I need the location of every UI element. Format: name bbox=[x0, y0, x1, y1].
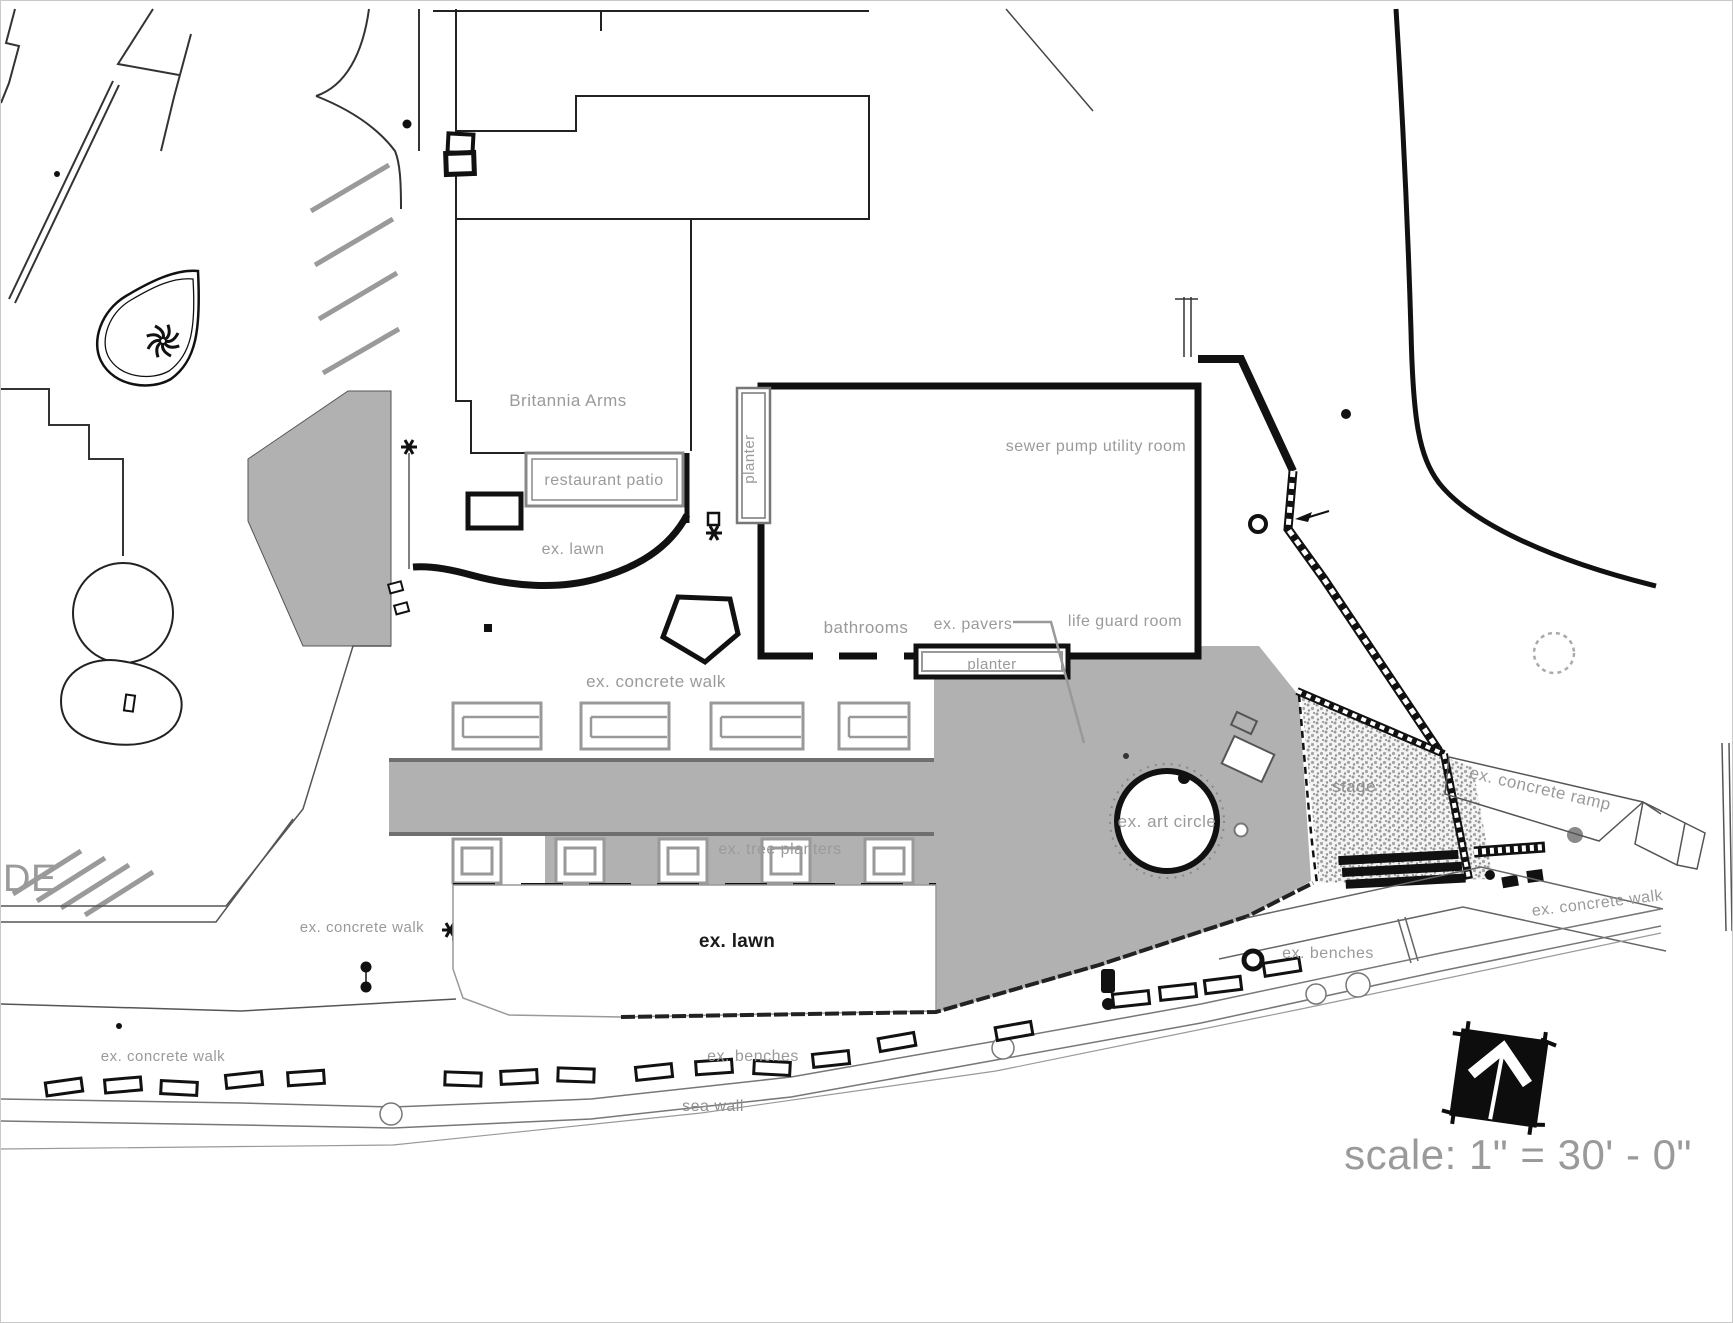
label-stage: stage bbox=[1332, 777, 1376, 796]
planting-bed bbox=[61, 660, 182, 745]
circular-planter bbox=[73, 563, 173, 663]
property-line bbox=[161, 34, 191, 151]
property-line bbox=[118, 9, 179, 75]
label-sea-wall: sea wall bbox=[682, 1098, 744, 1115]
light-post-icon bbox=[401, 440, 417, 454]
utility-box bbox=[124, 695, 135, 712]
shaded-paving-area bbox=[248, 391, 391, 646]
manhole bbox=[1250, 516, 1266, 532]
path-posts bbox=[1175, 297, 1198, 357]
curb-line bbox=[9, 81, 113, 299]
pole-dot bbox=[1485, 870, 1495, 880]
small-manhole bbox=[1235, 824, 1248, 837]
label-walk-center: ex. concrete walk bbox=[586, 672, 726, 691]
light-post-icon bbox=[706, 513, 722, 540]
label-benches-east: ex. benches bbox=[1282, 945, 1374, 962]
pole-dot bbox=[54, 171, 60, 177]
lawn-area bbox=[453, 885, 936, 1017]
label-edge-text: DE bbox=[3, 858, 57, 900]
label-tree-planters: ex. tree planters bbox=[718, 841, 841, 858]
label-concrete-ramp: ex. concrete ramp bbox=[1468, 763, 1613, 814]
kiosk-structure bbox=[468, 494, 521, 528]
label-restaurant-patio: restaurant patio bbox=[544, 472, 663, 489]
label-benches-south: ex. benches bbox=[707, 1048, 799, 1065]
label-walk-west: ex. concrete walk bbox=[300, 919, 424, 936]
stage-steps bbox=[1338, 850, 1466, 890]
planter-strips bbox=[453, 703, 909, 749]
site-plan-sheet: Britannia Arms restaurant patio ex. lawn… bbox=[0, 0, 1733, 1323]
parking-stripes-north bbox=[311, 165, 399, 373]
pole-dot bbox=[1341, 409, 1351, 419]
scale-note: scale: 1" = 30' - 0" bbox=[1344, 1131, 1692, 1178]
door-opening bbox=[877, 649, 904, 660]
bollard-pair bbox=[361, 962, 372, 993]
equipment-box bbox=[1501, 875, 1519, 889]
label-planter-south: planter bbox=[967, 656, 1016, 673]
label-life-guard-room: life guard room bbox=[1068, 613, 1182, 630]
label-sewer-pump: sewer pump utility room bbox=[1006, 438, 1186, 455]
label-walk-southwest: ex. concrete walk bbox=[101, 1048, 225, 1065]
trash-can-icon bbox=[1101, 969, 1115, 1010]
pole-dot bbox=[403, 120, 412, 129]
site-plan-canvas: Britannia Arms restaurant patio ex. lawn… bbox=[1, 1, 1733, 1323]
north-arrow-icon bbox=[1440, 1019, 1557, 1136]
label-ex-lawn-north: ex. lawn bbox=[542, 541, 605, 558]
post-base bbox=[484, 624, 492, 632]
label-art-circle: ex. art circle bbox=[1118, 812, 1217, 831]
landscape-island bbox=[97, 271, 199, 386]
curb-line bbox=[15, 85, 119, 303]
pentagon-planter bbox=[663, 597, 738, 662]
property-line bbox=[1, 9, 19, 103]
label-planter-west: planter bbox=[741, 434, 758, 483]
door-opening bbox=[813, 649, 839, 660]
car-icon bbox=[446, 133, 475, 174]
tree-canopy bbox=[1534, 633, 1574, 673]
drinking-fountain bbox=[1244, 951, 1262, 969]
label-ex-pavers: ex. pavers bbox=[934, 616, 1013, 633]
pole-dot bbox=[116, 1023, 122, 1029]
label-ex-lawn-south: ex. lawn bbox=[699, 931, 775, 952]
label-britannia-arms: Britannia Arms bbox=[509, 391, 627, 410]
direction-arrow bbox=[1295, 511, 1329, 522]
retaining-wall bbox=[1198, 359, 1293, 471]
driveway-curb bbox=[316, 96, 401, 209]
paved-band bbox=[389, 758, 936, 836]
stepped-boundary bbox=[1, 389, 123, 556]
label-walk-east: ex. concrete walk bbox=[1531, 887, 1665, 920]
driveway-curb bbox=[316, 9, 369, 96]
label-bathrooms: bathrooms bbox=[824, 618, 909, 637]
pole-dot bbox=[1123, 753, 1129, 759]
